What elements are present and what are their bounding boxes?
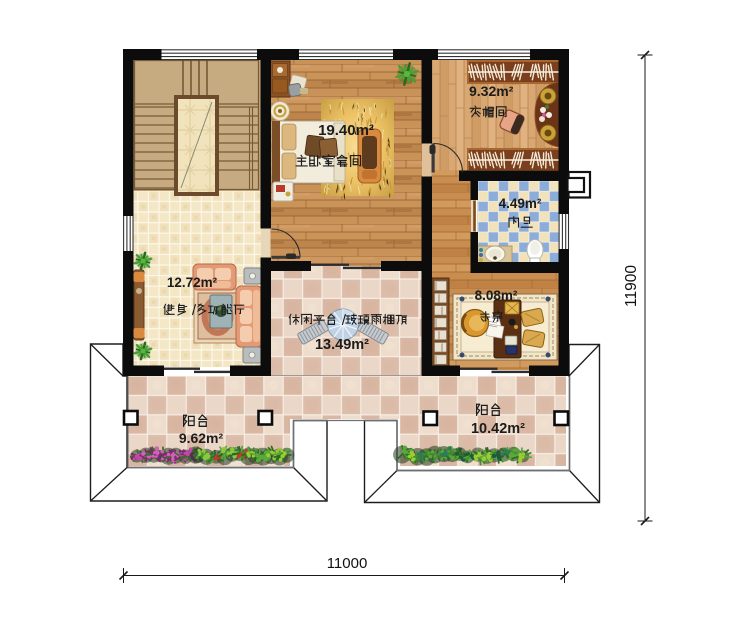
- svg-text:11000: 11000: [327, 555, 368, 572]
- svg-text:9.32m²: 9.32m²: [469, 83, 514, 99]
- svg-text:13.49m²: 13.49m²: [315, 337, 369, 353]
- svg-text:19.40m²: 19.40m²: [318, 122, 374, 139]
- svg-text:9.62m²: 9.62m²: [179, 430, 224, 446]
- svg-text:12.72m²: 12.72m²: [167, 275, 218, 290]
- svg-text:4.49m²: 4.49m²: [499, 196, 542, 211]
- svg-text:11900: 11900: [623, 265, 640, 307]
- svg-text:8.08m²: 8.08m²: [475, 288, 518, 303]
- svg-text:10.42m²: 10.42m²: [471, 421, 525, 437]
